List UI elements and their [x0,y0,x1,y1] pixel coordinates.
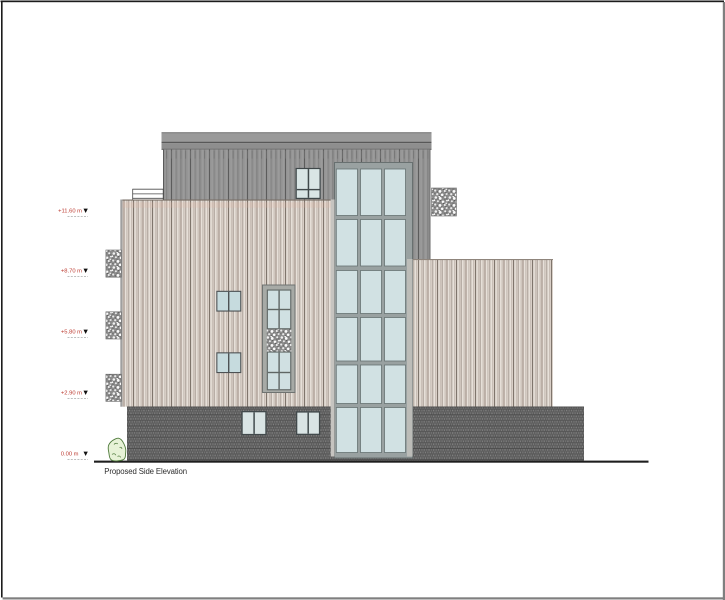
svg-text:0.00 m: 0.00 m [61,452,79,458]
svg-text:Proposed Side Elevation: Proposed Side Elevation [104,467,187,476]
svg-text:+11.60 m: +11.60 m [58,209,82,215]
svg-text:+5.80 m: +5.80 m [61,330,82,336]
svg-text:+8.70 m: +8.70 m [61,269,82,275]
svg-text:+2.90 m: +2.90 m [61,391,82,397]
